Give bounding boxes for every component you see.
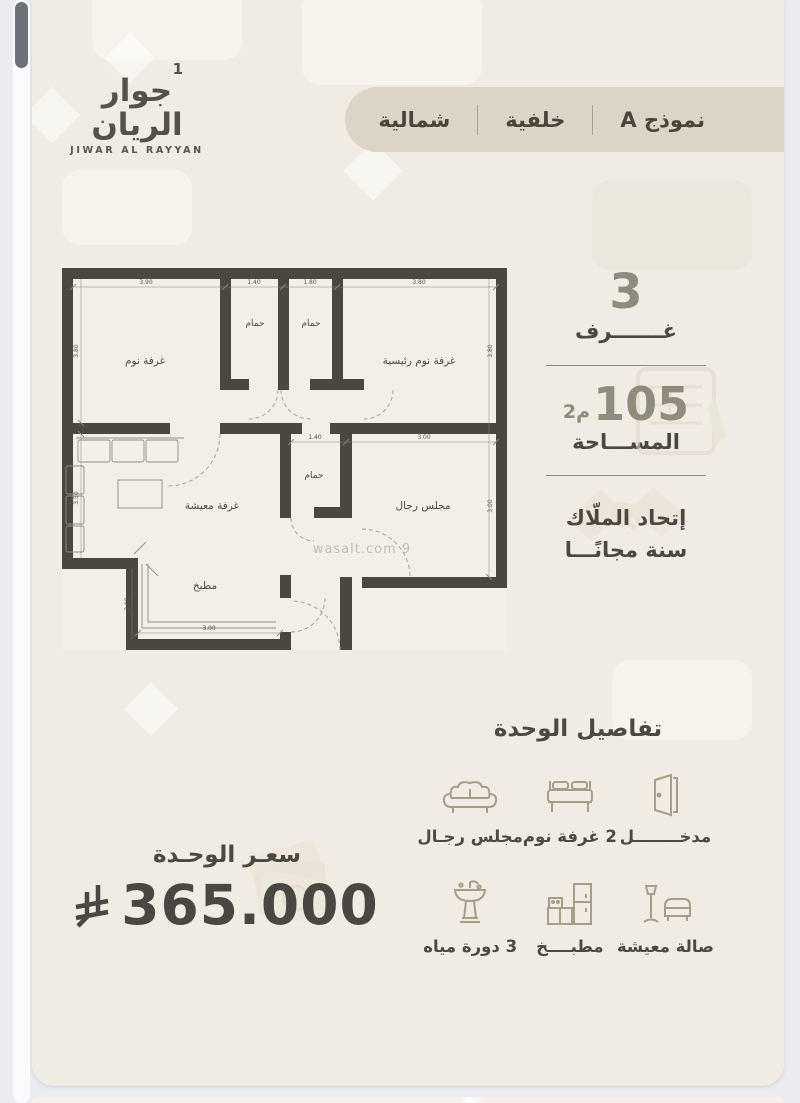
area-unit: م2 xyxy=(563,401,590,423)
price-value: 365.000 xyxy=(121,878,379,933)
background-pattern-shape xyxy=(62,170,192,245)
background-pattern-shape xyxy=(92,0,242,60)
divider xyxy=(546,475,706,476)
rooms-count: 3 xyxy=(510,268,742,316)
room-label-bath-3: حمام xyxy=(304,471,323,481)
price-row: 365.000 xyxy=(72,878,382,933)
hoa-line2: سنة مجانًـــا xyxy=(510,535,742,567)
detail-label: مطبــــخ xyxy=(536,937,603,956)
svg-text:1.40: 1.40 xyxy=(308,434,322,441)
detail-label: 3 دورة مياه xyxy=(423,937,517,956)
tab-rear[interactable]: خلفية xyxy=(478,108,592,132)
detail-item-kitchen: مطبــــخ xyxy=(523,876,617,956)
saudi-riyal-symbol-icon xyxy=(75,881,109,931)
detail-label: صالة معيشة xyxy=(617,937,714,956)
price-section: سعـر الوحـدة 365.000 xyxy=(72,842,382,933)
majlis-sofa-icon xyxy=(441,776,499,818)
room-label-living: غرفة معيشة xyxy=(185,500,240,512)
room-label-master-bedroom: غرفة نوم رئيسية xyxy=(383,355,456,367)
logo-number: 1 xyxy=(173,61,182,78)
room-label-bath-2: حمام xyxy=(301,319,320,329)
room-label-bedroom: غرفة نوم xyxy=(125,355,166,367)
washbasin-icon xyxy=(450,878,490,928)
living-room-icon xyxy=(637,882,693,928)
scrollbar-track[interactable] xyxy=(13,0,30,1103)
viewer-background: 1 جوار الريان JIWAR AL RAYYAN نموذج A خل… xyxy=(0,0,800,1103)
tab-separator xyxy=(477,105,478,135)
stats-column: 3 غـــــــرف 105 م2 المســـاحة xyxy=(510,268,742,566)
svg-text:3.80: 3.80 xyxy=(412,279,426,286)
background-pattern-shape xyxy=(124,682,178,736)
brand-logo: 1 جوار الريان JIWAR AL RAYYAN xyxy=(62,74,212,156)
svg-text:3.80: 3.80 xyxy=(487,344,494,358)
detail-label: مجلس رجـال xyxy=(417,827,522,846)
hoa-stat: إتحاد الملّاك سنة مجانًـــا xyxy=(510,491,742,566)
area-value: 105 xyxy=(593,381,689,427)
svg-text:3.00: 3.00 xyxy=(202,625,216,632)
next-card-preview xyxy=(32,1097,784,1103)
kitchen-icon xyxy=(544,880,596,928)
unit-details-section: تفاصيل الوحدة مدخــــــــل xyxy=(442,716,714,956)
svg-text:3.90: 3.90 xyxy=(139,279,153,286)
tab-north[interactable]: شمالية xyxy=(351,108,477,132)
room-label-majlis: مجلس رجال xyxy=(396,500,451,512)
detail-label: 2 غرفة نوم xyxy=(523,827,617,846)
site-watermark: wasalt.com 9 xyxy=(313,542,411,557)
floorplan: 3.90 1.40 1.80 3.80 1.40 3.00 3.00 3.80 … xyxy=(62,266,512,650)
listing-flyer-card: 1 جوار الريان JIWAR AL RAYYAN نموذج A خل… xyxy=(32,0,784,1086)
svg-text:3.80: 3.80 xyxy=(73,344,80,358)
svg-text:2.00: 2.00 xyxy=(124,597,131,611)
price-label: سعـر الوحـدة xyxy=(72,842,382,868)
logo-latin-text: JIWAR AL RAYYAN xyxy=(62,145,212,156)
tab-bar: نموذج A خلفية شمالية xyxy=(345,87,784,152)
area-stat: 105 م2 المســـاحة xyxy=(510,381,742,459)
detail-item-entrance: مدخــــــــل xyxy=(617,766,714,846)
scrollbar-thumb[interactable] xyxy=(15,2,28,68)
bed-icon xyxy=(543,776,597,818)
rooms-label: غـــــــرف xyxy=(510,316,742,348)
detail-label: مدخــــــــل xyxy=(620,827,711,846)
tab-model-a[interactable]: نموذج A xyxy=(593,108,732,132)
detail-item-majlis: مجلس رجـال xyxy=(417,766,522,846)
detail-item-living-room: صالة معيشة xyxy=(617,876,714,956)
door-icon xyxy=(647,772,683,818)
unit-details-title: تفاصيل الوحدة xyxy=(442,716,714,742)
logo-arabic-text: 1 جوار الريان xyxy=(62,74,212,142)
svg-text:3.50: 3.50 xyxy=(73,491,80,505)
background-pattern-shape xyxy=(302,0,482,85)
room-label-bath-1: حمام xyxy=(245,319,264,329)
svg-text:1.80: 1.80 xyxy=(303,279,317,286)
room-label-kitchen: مطبخ xyxy=(193,580,217,592)
svg-text:3.00: 3.00 xyxy=(417,434,431,441)
tab-separator xyxy=(592,105,593,135)
svg-text:3.00: 3.00 xyxy=(487,499,494,513)
detail-item-bedrooms: 2 غرفة نوم xyxy=(523,766,617,846)
hoa-line1: إتحاد الملّاك xyxy=(510,503,742,535)
background-pattern-shape xyxy=(592,180,752,270)
detail-item-bathrooms: 3 دورة مياه xyxy=(417,876,522,956)
svg-text:1.40: 1.40 xyxy=(247,279,261,286)
unit-details-grid: مدخــــــــل 2 غرفة نوم xyxy=(442,766,714,956)
